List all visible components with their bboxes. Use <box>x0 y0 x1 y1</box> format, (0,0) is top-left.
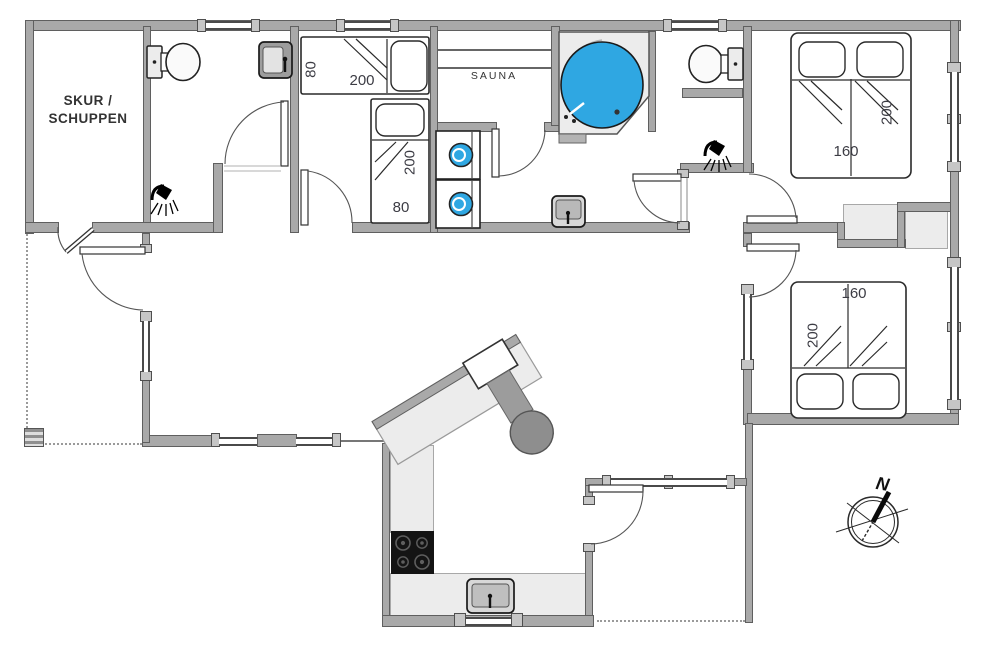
shed-label-line2: SCHUPPEN <box>28 110 148 128</box>
bed-length-label: 200 <box>879 93 896 133</box>
washing-machine-icon <box>436 180 480 228</box>
door-leaf-and-arc <box>492 129 545 177</box>
bed-length-label: 200 <box>805 316 822 356</box>
shower-icon <box>704 140 731 172</box>
sink-icon <box>259 42 292 78</box>
sink-icon <box>552 196 585 227</box>
compass-rose-icon <box>836 492 908 547</box>
door-leaf-and-arc <box>80 247 145 310</box>
toilet-icon <box>689 46 743 83</box>
toilet-icon <box>147 44 200 81</box>
door-leaf-and-arc <box>224 101 288 171</box>
washing-machine-icon <box>436 131 480 179</box>
floorplan-graphics <box>0 0 1000 667</box>
room-label-sauna: SAUNA <box>449 70 539 82</box>
stove-burners <box>396 536 429 569</box>
door-leaf-and-arc <box>589 485 643 544</box>
door-leaf-and-arc <box>633 174 687 223</box>
door-leaf-and-arc <box>747 174 797 223</box>
kitchen-sink-icon <box>467 579 514 613</box>
bed-width-label: 80 <box>303 50 320 90</box>
room-label-shed: SKUR / SCHUPPEN <box>28 92 148 128</box>
bed-length-label: 200 <box>402 143 419 183</box>
corner-bathtub-icon <box>559 32 649 143</box>
fireplace-icon <box>370 332 574 519</box>
bed-width-label: 80 <box>379 199 423 216</box>
bed-width-label: 160 <box>832 285 876 302</box>
shower-icon <box>151 184 178 216</box>
shed-label-line1: SKUR / <box>28 92 148 110</box>
door-leaf-and-arc <box>301 170 352 225</box>
bed-length-label: 200 <box>340 72 384 89</box>
bed-width-label: 160 <box>824 143 868 160</box>
floor-plan: SKUR / SCHUPPEN SAUNA 80 200 200 80 200 … <box>0 0 1000 667</box>
sauna-bench-icon <box>438 50 551 68</box>
